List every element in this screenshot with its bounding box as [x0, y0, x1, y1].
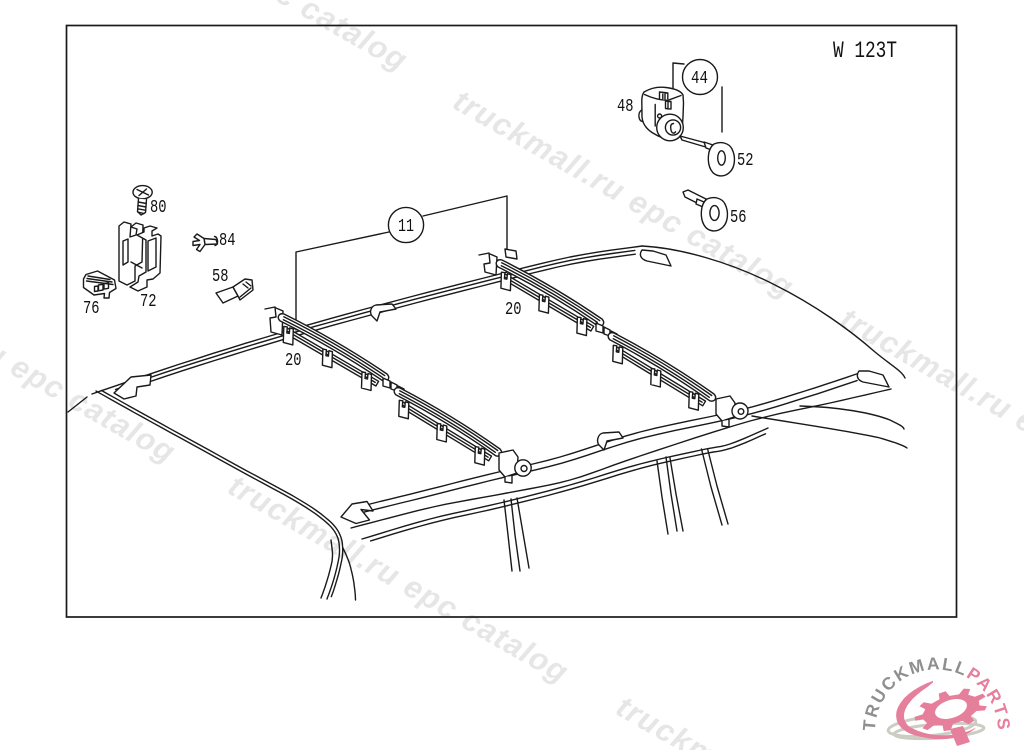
svg-text:76: 76 [83, 299, 100, 319]
svg-text:80: 80 [150, 198, 167, 218]
svg-text:48: 48 [617, 97, 634, 117]
svg-text:W 123T: W 123T [833, 38, 897, 64]
svg-text:11: 11 [398, 217, 414, 237]
svg-text:truckmall.ru epc catalog: truckmall.ru epc catalog [835, 301, 1024, 523]
svg-text:truckmall.ru epc catalog: truckmall.ru epc catalog [62, 0, 414, 77]
svg-text:20: 20 [285, 351, 302, 371]
svg-text:84: 84 [219, 231, 236, 251]
svg-text:44: 44 [691, 69, 708, 89]
svg-text:truckmall.ru epc catalog: truckmall.ru epc catalog [223, 468, 575, 690]
svg-text:72: 72 [140, 292, 157, 312]
svg-text:56: 56 [730, 208, 747, 228]
svg-text:20: 20 [505, 300, 522, 320]
svg-text:58: 58 [212, 267, 229, 287]
svg-text:52: 52 [737, 151, 754, 171]
